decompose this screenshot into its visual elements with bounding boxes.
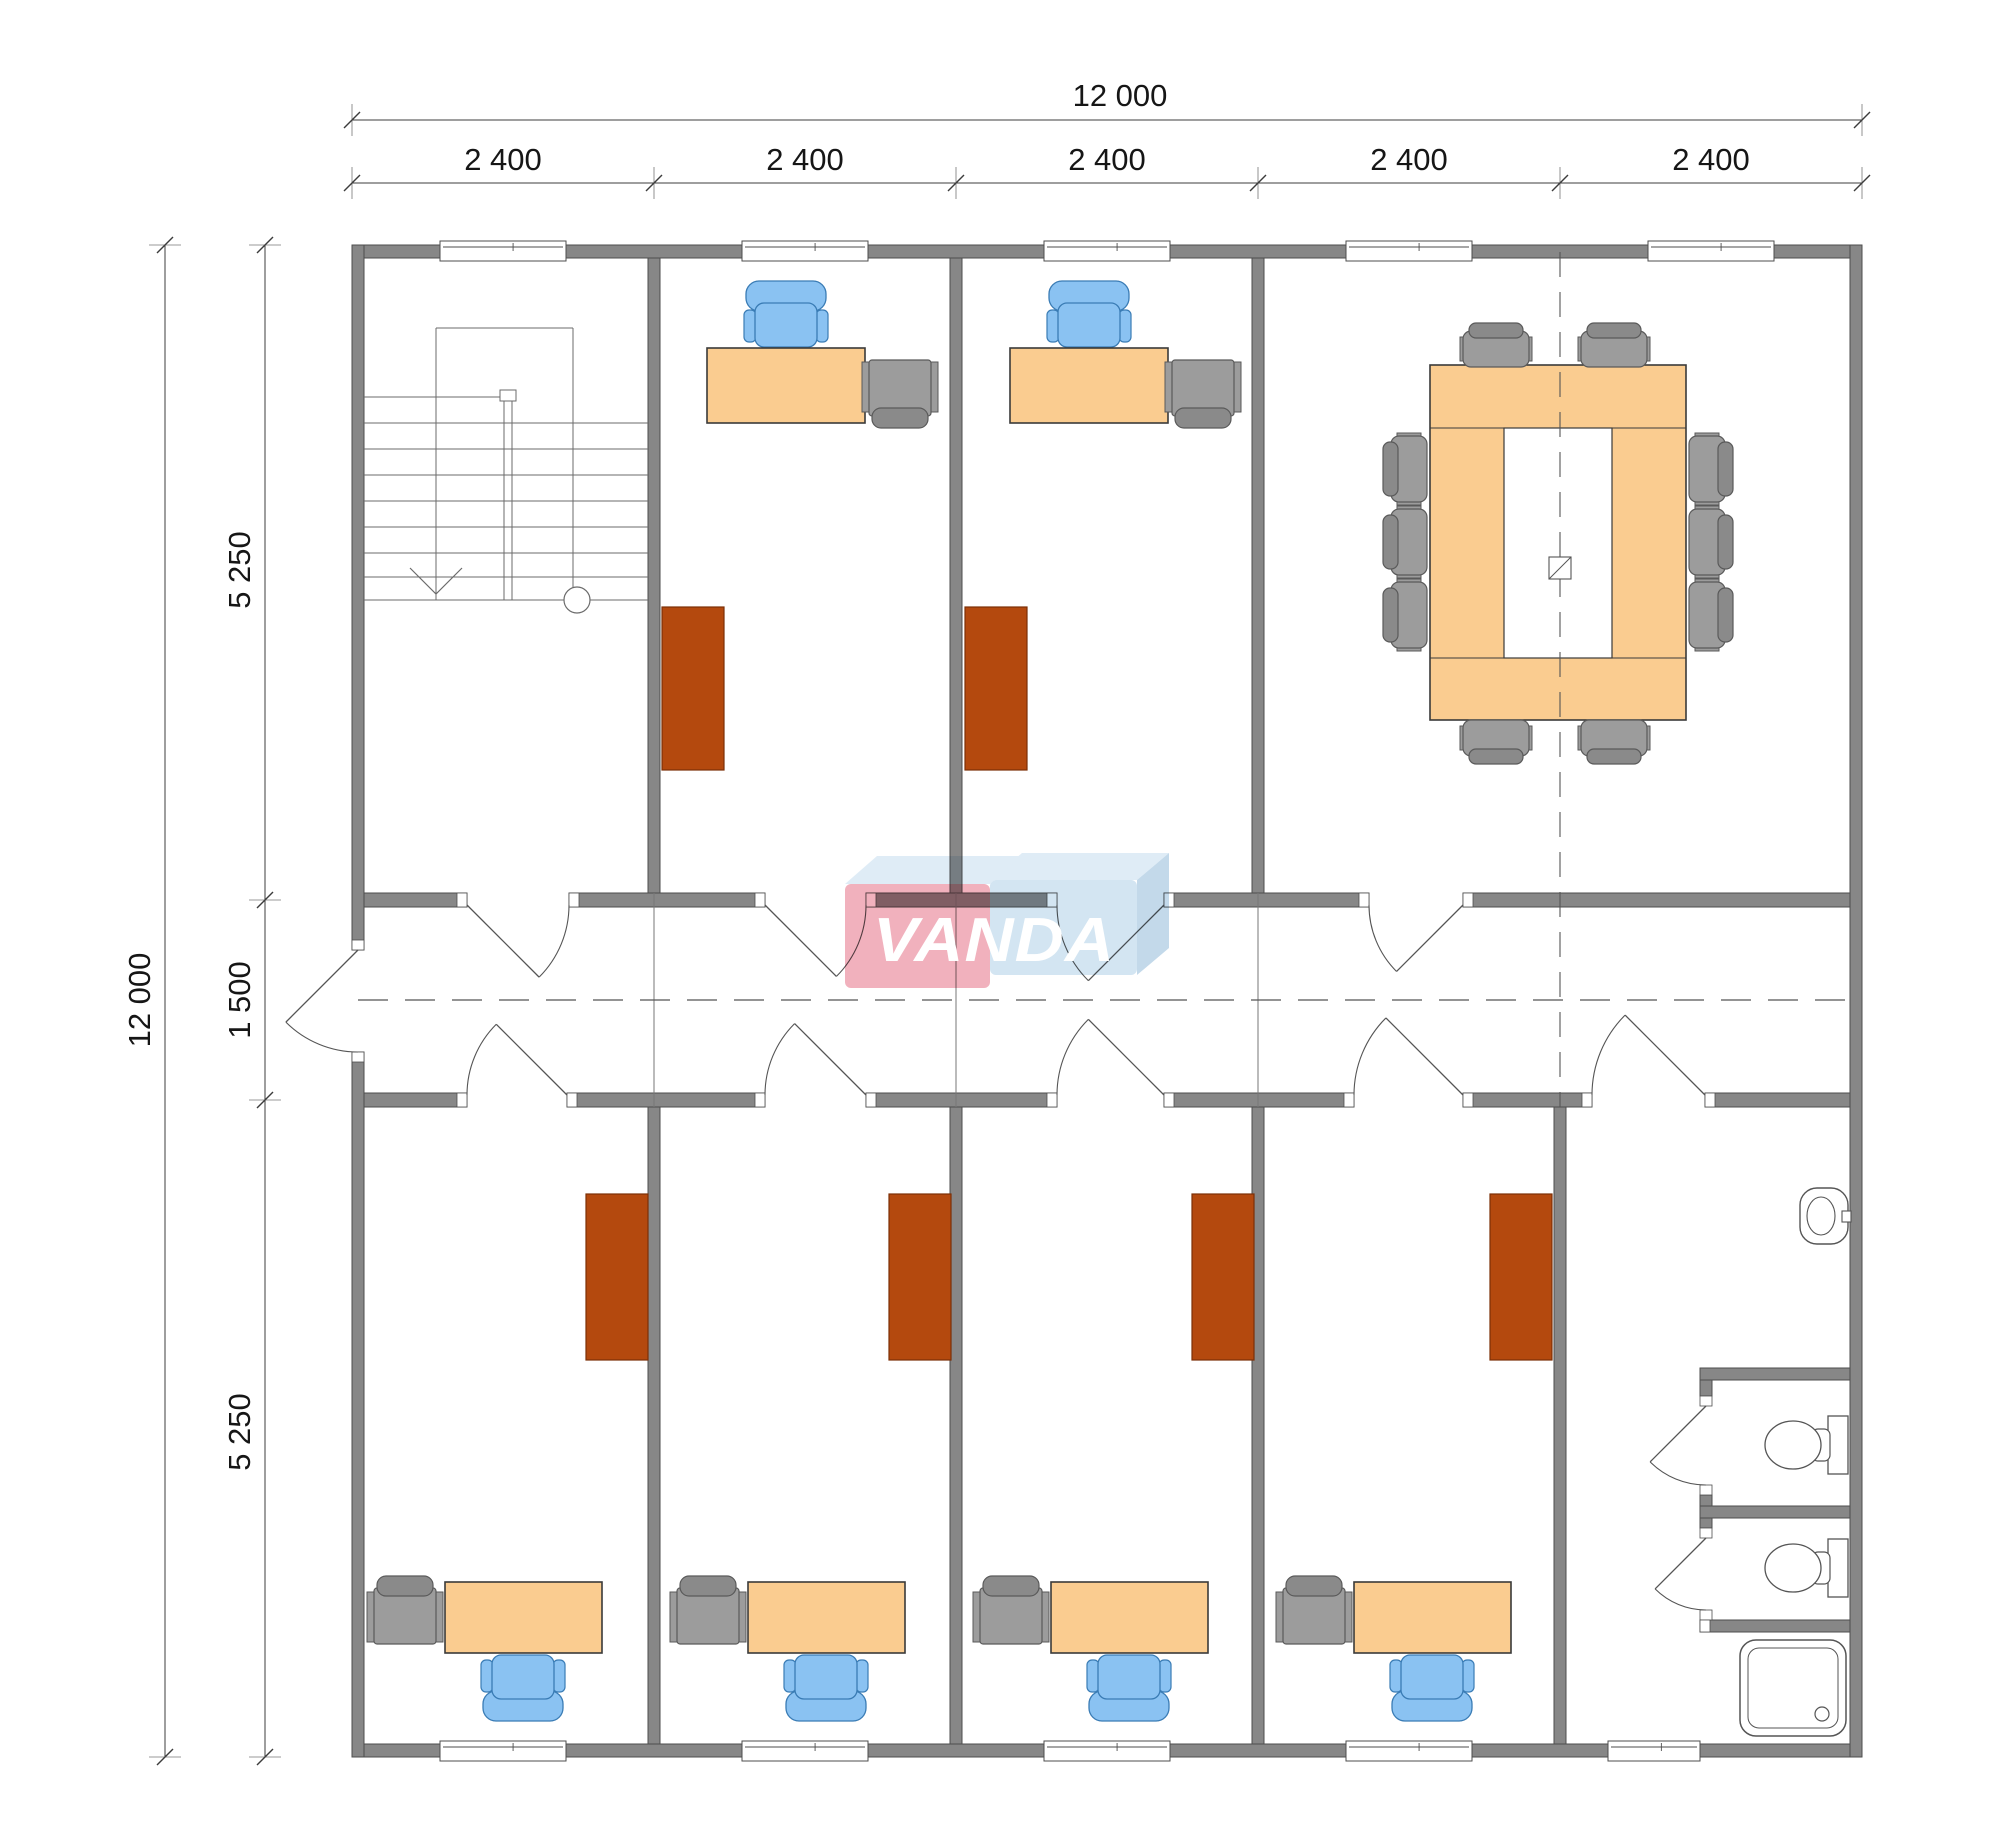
stall-jamb-cap bbox=[1700, 1485, 1712, 1495]
door-jamb-cap bbox=[352, 940, 364, 950]
dim-label-bay-2: 2 400 bbox=[1068, 142, 1146, 177]
door-6-leaf bbox=[1088, 1019, 1164, 1095]
meeting-chair-8-back bbox=[1718, 515, 1733, 569]
door-4-leaf bbox=[496, 1024, 567, 1095]
corridor-wall-top-0 bbox=[364, 893, 467, 907]
window-bottom-3 bbox=[1346, 1741, 1472, 1761]
corridor-wall-bottom-3 bbox=[1164, 1093, 1354, 1107]
dim-label-seg-1: 1 500 bbox=[222, 961, 257, 1039]
window-bottom-1 bbox=[742, 1741, 868, 1761]
office-bottom-3-desk bbox=[1354, 1582, 1511, 1653]
office-bottom-1-side-chair-back bbox=[680, 1576, 736, 1596]
floor-plan-drawing: 12 0002 4002 4002 4002 4002 40012 0005 2… bbox=[0, 0, 2000, 1848]
office-top-0-chair-armrest bbox=[816, 310, 828, 342]
meeting-chair-6 bbox=[1383, 579, 1427, 651]
door-jamb-cap bbox=[1463, 1093, 1473, 1107]
office-top-0-side-chair bbox=[862, 360, 938, 428]
inner-wall-2 bbox=[1252, 258, 1264, 893]
stall-jamb-cap bbox=[1700, 1620, 1710, 1632]
door-5-swing-arc bbox=[765, 1024, 795, 1095]
stall-jamb-cap bbox=[1700, 1528, 1712, 1538]
vanda-logo-text: VANDA bbox=[873, 906, 1115, 975]
corridor-wall-bottom-4 bbox=[1463, 1093, 1592, 1107]
office-bottom-2-chair-seat bbox=[1098, 1655, 1160, 1699]
office-top-0-chair-seat bbox=[755, 303, 817, 347]
office-bottom-2-chair-armrest bbox=[1159, 1660, 1171, 1692]
office-bottom-3-chair-armrest bbox=[1462, 1660, 1474, 1692]
meeting-chair-7 bbox=[1689, 433, 1733, 505]
door-jamb-cap bbox=[457, 1093, 467, 1107]
office-bottom-1-desk bbox=[748, 1582, 905, 1653]
stall-door-1-leaf bbox=[1655, 1538, 1706, 1589]
door-7-leaf bbox=[1386, 1018, 1463, 1095]
office-bottom-2-desk bbox=[1051, 1582, 1208, 1653]
meeting-chair-7-back bbox=[1718, 442, 1733, 496]
sink-faucet bbox=[1842, 1211, 1851, 1222]
shower-tray bbox=[1740, 1640, 1846, 1736]
door-jamb-cap bbox=[569, 893, 579, 907]
door-jamb-cap bbox=[457, 893, 467, 907]
door-5-leaf bbox=[795, 1024, 866, 1095]
meeting-chair-0-back bbox=[1469, 323, 1523, 338]
window-top-1 bbox=[742, 241, 868, 261]
office-top-1-cabinet bbox=[965, 607, 1027, 770]
office-bottom-0-side-chair-back bbox=[377, 1576, 433, 1596]
door-jamb-cap bbox=[866, 1093, 876, 1107]
stall-wall-stub bbox=[1700, 1518, 1712, 1528]
outer-wall-4 bbox=[1850, 245, 1862, 1757]
door-jamb-cap bbox=[1463, 893, 1473, 907]
door-jamb-cap bbox=[755, 1093, 765, 1107]
door-9-leaf bbox=[286, 950, 358, 1022]
dim-label-bay-0: 2 400 bbox=[464, 142, 542, 177]
meeting-chair-1-back bbox=[1587, 323, 1641, 338]
corridor-wall-bottom-1 bbox=[567, 1093, 765, 1107]
office-bottom-1-chair-seat bbox=[795, 1655, 857, 1699]
inner-wall-0 bbox=[648, 258, 660, 893]
outer-wall-3 bbox=[352, 1052, 364, 1757]
stall-door-1-swing-arc bbox=[1655, 1589, 1706, 1610]
inner-wall-4 bbox=[950, 1107, 962, 1744]
meeting-table-opening bbox=[1504, 428, 1612, 658]
stall-door-0-leaf bbox=[1650, 1406, 1706, 1462]
door-jamb-cap bbox=[1582, 1093, 1592, 1107]
door-3-swing-arc bbox=[1369, 905, 1397, 971]
office-bottom-0-side-chair bbox=[367, 1576, 443, 1644]
door-3-leaf bbox=[1397, 905, 1463, 971]
meeting-chair-3 bbox=[1578, 720, 1650, 764]
stall-door-0-swing-arc bbox=[1650, 1462, 1706, 1485]
window-bottom-4 bbox=[1608, 1741, 1700, 1761]
meeting-chair-2 bbox=[1460, 720, 1532, 764]
office-bottom-2-chair-armrest bbox=[1087, 1660, 1099, 1692]
office-bottom-3-chair bbox=[1390, 1655, 1474, 1721]
office-top-1-chair-armrest bbox=[1119, 310, 1131, 342]
door-jamb-cap bbox=[1705, 1093, 1715, 1107]
door-jamb-cap bbox=[352, 1052, 364, 1062]
door-0-swing-arc bbox=[539, 905, 569, 977]
door-0-leaf bbox=[467, 905, 539, 977]
outer-wall-2 bbox=[352, 245, 364, 950]
dim-label-total-height: 12 000 bbox=[122, 953, 157, 1048]
office-bottom-0-chair bbox=[481, 1655, 565, 1721]
meeting-chair-5 bbox=[1383, 506, 1427, 578]
door-jamb-cap bbox=[1164, 1093, 1174, 1107]
meeting-chair-0 bbox=[1460, 323, 1532, 367]
door-8-leaf bbox=[1625, 1015, 1705, 1095]
dim-label-bay-3: 2 400 bbox=[1370, 142, 1448, 177]
office-bottom-1-chair-armrest bbox=[784, 1660, 796, 1692]
office-bottom-3-chair-armrest bbox=[1390, 1660, 1402, 1692]
office-bottom-0-chair-seat bbox=[492, 1655, 554, 1699]
toilet-0-bowl bbox=[1765, 1421, 1821, 1469]
office-bottom-3-chair-seat bbox=[1401, 1655, 1463, 1699]
door-8-swing-arc bbox=[1592, 1015, 1625, 1095]
shower-wall bbox=[1700, 1620, 1850, 1632]
meeting-chair-1 bbox=[1578, 323, 1650, 367]
stair-start-marker bbox=[564, 587, 590, 613]
office-bottom-0-desk bbox=[445, 1582, 602, 1653]
office-bottom-2-side-chair-back bbox=[983, 1576, 1039, 1596]
meeting-chair-6-back bbox=[1383, 588, 1398, 642]
meeting-chair-9 bbox=[1689, 579, 1733, 651]
meeting-chair-8 bbox=[1689, 506, 1733, 578]
dim-label-seg-2: 5 250 bbox=[222, 1393, 257, 1471]
office-bottom-3-side-chair-back bbox=[1286, 1576, 1342, 1596]
stall-jamb-cap bbox=[1700, 1610, 1712, 1620]
inner-wall-3 bbox=[648, 1107, 660, 1744]
office-top-0-chair bbox=[744, 281, 828, 347]
window-top-0 bbox=[440, 241, 566, 261]
office-top-1-side-chair-back bbox=[1175, 408, 1231, 428]
meeting-chair-9-back bbox=[1718, 588, 1733, 642]
office-bottom-1-side-chair bbox=[670, 1576, 746, 1644]
dim-label-bay-1: 2 400 bbox=[766, 142, 844, 177]
floor-plan-page: 12 0002 4002 4002 4002 4002 40012 0005 2… bbox=[0, 0, 2000, 1848]
office-bottom-1-chair bbox=[784, 1655, 868, 1721]
door-9-swing-arc bbox=[286, 1022, 358, 1052]
shower-drain bbox=[1815, 1707, 1829, 1721]
office-top-1-chair-armrest bbox=[1047, 310, 1059, 342]
meeting-chair-4 bbox=[1383, 433, 1427, 505]
door-jamb-cap bbox=[755, 893, 765, 907]
stall-wall-stub bbox=[1700, 1380, 1712, 1396]
corridor-wall-top-3 bbox=[1164, 893, 1369, 907]
door-jamb-cap bbox=[1344, 1093, 1354, 1107]
corridor-wall-top-4 bbox=[1463, 893, 1850, 907]
door-1-leaf bbox=[765, 905, 836, 976]
office-top-0-chair-armrest bbox=[744, 310, 756, 342]
toilet-0-tank bbox=[1828, 1416, 1848, 1474]
office-bottom-3-side-chair bbox=[1276, 1576, 1352, 1644]
office-bottom-2-side-chair bbox=[973, 1576, 1049, 1644]
office-bottom-0-cabinet bbox=[586, 1194, 648, 1360]
corridor-wall-bottom-2 bbox=[866, 1093, 1057, 1107]
office-bottom-2-chair bbox=[1087, 1655, 1171, 1721]
dim-label-bay-4: 2 400 bbox=[1672, 142, 1750, 177]
office-top-1-desk bbox=[1010, 348, 1168, 423]
meeting-chair-5-back bbox=[1383, 515, 1398, 569]
office-top-0-cabinet bbox=[662, 607, 724, 770]
door-4-swing-arc bbox=[467, 1024, 496, 1095]
corridor-wall-top-1 bbox=[569, 893, 765, 907]
stall-wall-stub bbox=[1700, 1495, 1712, 1506]
meeting-chair-4-back bbox=[1383, 442, 1398, 496]
window-top-2 bbox=[1044, 241, 1170, 261]
dim-label-seg-0: 5 250 bbox=[222, 531, 257, 609]
corridor-wall-bottom-5 bbox=[1705, 1093, 1850, 1107]
office-bottom-2-cabinet bbox=[1192, 1194, 1254, 1360]
office-bottom-1-chair-armrest bbox=[856, 1660, 868, 1692]
inner-wall-1 bbox=[950, 258, 962, 893]
toilet-1-tank bbox=[1828, 1539, 1848, 1597]
door-7-swing-arc bbox=[1354, 1018, 1386, 1095]
stall-jamb-cap bbox=[1700, 1396, 1712, 1406]
office-bottom-1-cabinet bbox=[889, 1194, 951, 1360]
office-top-1-chair-seat bbox=[1058, 303, 1120, 347]
office-bottom-3-cabinet bbox=[1490, 1194, 1552, 1360]
toilet-partition-0 bbox=[1700, 1368, 1850, 1380]
meeting-chair-2-back bbox=[1469, 749, 1523, 764]
toilet-partition-1 bbox=[1700, 1506, 1850, 1518]
corridor-wall-bottom-0 bbox=[364, 1093, 467, 1107]
office-top-0-side-chair-back bbox=[872, 408, 928, 428]
office-bottom-0-chair-armrest bbox=[553, 1660, 565, 1692]
inner-wall-6 bbox=[1554, 1107, 1566, 1744]
office-top-1-side-chair bbox=[1165, 360, 1241, 428]
office-top-0-desk bbox=[707, 348, 865, 423]
toilet-1-bowl bbox=[1765, 1544, 1821, 1592]
window-bottom-0 bbox=[440, 1741, 566, 1761]
stair-rail-newel bbox=[500, 390, 516, 401]
office-top-1-chair bbox=[1047, 281, 1131, 347]
door-6-swing-arc bbox=[1057, 1019, 1088, 1095]
window-top-4 bbox=[1648, 241, 1774, 261]
window-top-3 bbox=[1346, 241, 1472, 261]
door-jamb-cap bbox=[1047, 1093, 1057, 1107]
door-jamb-cap bbox=[567, 1093, 577, 1107]
door-jamb-cap bbox=[1359, 893, 1369, 907]
meeting-chair-3-back bbox=[1587, 749, 1641, 764]
window-bottom-2 bbox=[1044, 1741, 1170, 1761]
office-bottom-0-chair-armrest bbox=[481, 1660, 493, 1692]
dim-label-total-width: 12 000 bbox=[1073, 78, 1168, 113]
